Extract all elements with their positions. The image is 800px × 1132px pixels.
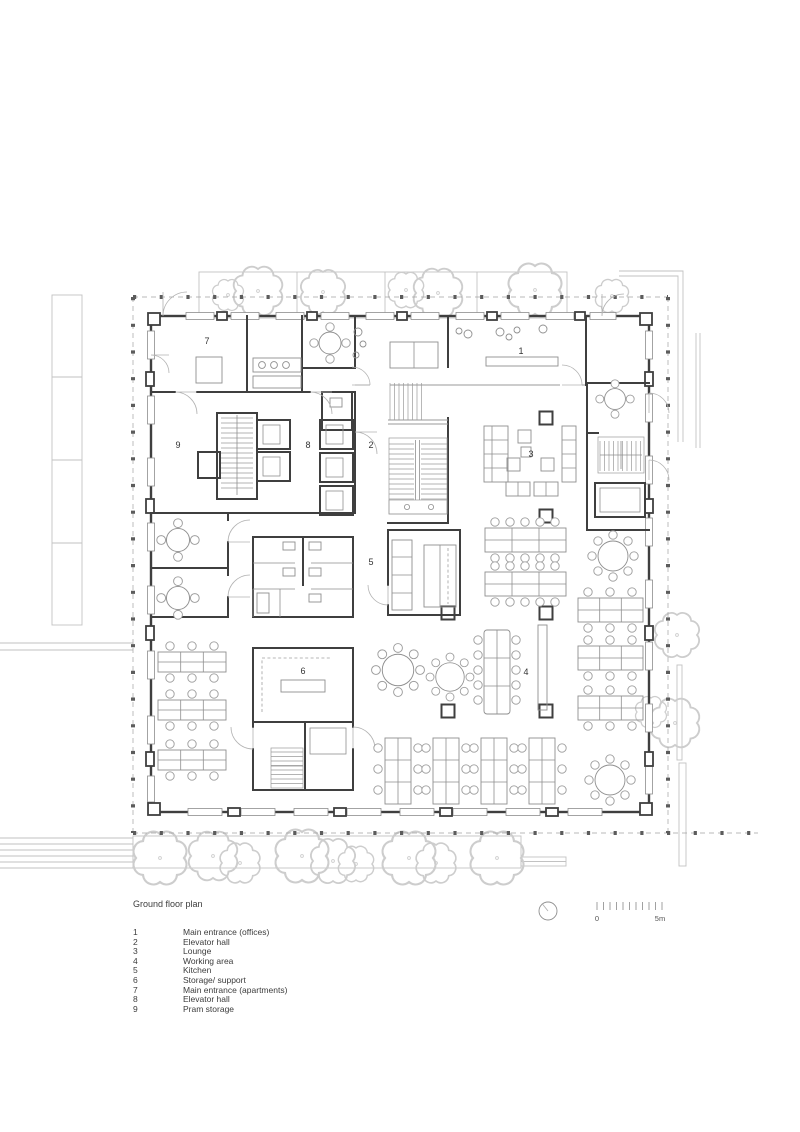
property-boundary xyxy=(133,297,758,833)
tree-icon xyxy=(471,832,524,885)
room-label-1: 1 xyxy=(518,346,523,356)
legend-item-number: 8 xyxy=(133,995,183,1005)
tree-icon xyxy=(651,699,700,748)
legend-item-number: 1 xyxy=(133,928,183,938)
tree-icon xyxy=(383,832,436,885)
legend-item-label: Pram storage xyxy=(183,1005,234,1015)
stair-central-main xyxy=(389,438,447,514)
building-shell xyxy=(146,312,653,816)
room-label-6: 6 xyxy=(300,666,305,676)
tree-icon xyxy=(276,830,329,883)
room-label-8: 8 xyxy=(305,440,310,450)
stair-central-upper xyxy=(388,383,448,424)
tree-icon xyxy=(595,279,628,312)
tree-icon xyxy=(234,267,283,316)
tree-icon xyxy=(509,264,562,317)
furniture xyxy=(157,323,643,805)
stair-lower xyxy=(271,728,346,788)
legend-item-number: 6 xyxy=(133,976,183,986)
tree-icon xyxy=(414,269,463,318)
elevators-offices xyxy=(320,420,353,515)
legend: Ground floor plan 1Main entrance (office… xyxy=(133,899,287,1014)
room-label-2: 2 xyxy=(368,440,373,450)
room-label-7: 7 xyxy=(204,336,209,346)
legend-item-number: 2 xyxy=(133,938,183,948)
plan-title: Ground floor plan xyxy=(133,899,287,909)
tree-icon xyxy=(301,270,345,314)
tree-icon xyxy=(134,832,187,885)
room-label-3: 3 xyxy=(528,449,533,459)
scale-end-label: 5m xyxy=(655,914,665,923)
room-label-9: 9 xyxy=(175,440,180,450)
elevators-apartments xyxy=(257,420,290,481)
room-label-4: 4 xyxy=(523,667,528,677)
legend-item-number: 9 xyxy=(133,1005,183,1015)
tree-icon xyxy=(338,846,373,881)
stair-right xyxy=(595,437,645,517)
stair-left xyxy=(221,415,253,495)
legend-item-number: 3 xyxy=(133,947,183,957)
tree-icon xyxy=(655,613,699,657)
north-arrow-icon xyxy=(539,902,557,920)
legend-item-number: 7 xyxy=(133,986,183,996)
stairs-and-elevators xyxy=(221,383,645,788)
floor-plan-drawing: 1 2 3 4 5 6 7 8 9 0 5m xyxy=(0,0,800,1132)
legend-item-number: 5 xyxy=(133,966,183,976)
floor-plan-page: 1 2 3 4 5 6 7 8 9 0 5m Ground floor plan… xyxy=(0,0,800,1132)
scale-zero-label: 0 xyxy=(595,914,599,923)
legend-item-number: 4 xyxy=(133,957,183,967)
room-label-5: 5 xyxy=(368,557,373,567)
tree-icon xyxy=(189,832,238,881)
legend-item: 9Pram storage xyxy=(133,1005,287,1015)
scale-bar: 0 5m xyxy=(595,902,665,923)
